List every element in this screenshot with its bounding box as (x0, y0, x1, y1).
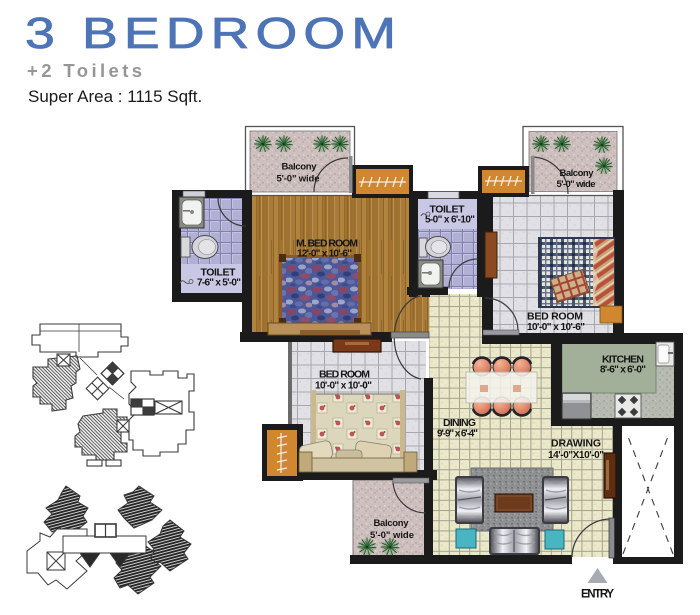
svg-text:14'-0"X10'-0": 14'-0"X10'-0" (548, 450, 604, 461)
svg-text:5'-0" wide: 5'-0" wide (557, 179, 596, 190)
svg-text:7-6" x 5'-0": 7-6" x 5'-0" (197, 278, 241, 289)
svg-text:5'-0" wide: 5'-0" wide (277, 174, 320, 185)
svg-text:Balcony: Balcony (374, 518, 410, 529)
svg-text:BED ROOM: BED ROOM (527, 311, 583, 323)
svg-text:5-0" x 6'-10": 5-0" x 6'-10" (425, 215, 475, 226)
svg-text:ENTRY: ENTRY (581, 589, 614, 601)
svg-text:8'-6" x 6'-0": 8'-6" x 6'-0" (600, 365, 646, 376)
svg-text:Balcony: Balcony (282, 162, 318, 173)
svg-text:5'-0" wide: 5'-0" wide (370, 530, 414, 541)
svg-text:DINING: DINING (443, 417, 476, 429)
svg-text:12'-0" x 10'-6": 12'-0" x 10'-6" (297, 249, 352, 260)
svg-text:10'-0" x 10'-6": 10'-0" x 10'-6" (527, 322, 585, 333)
svg-text:BED ROOM: BED ROOM (319, 369, 370, 381)
svg-text:10'-0" x 10'-0": 10'-0" x 10'-0" (315, 381, 372, 392)
svg-text:DRAWING: DRAWING (551, 438, 601, 450)
svg-text:Balcony: Balcony (560, 168, 595, 179)
svg-text:9'-9" x 6'-4": 9'-9" x 6'-4" (437, 429, 478, 440)
